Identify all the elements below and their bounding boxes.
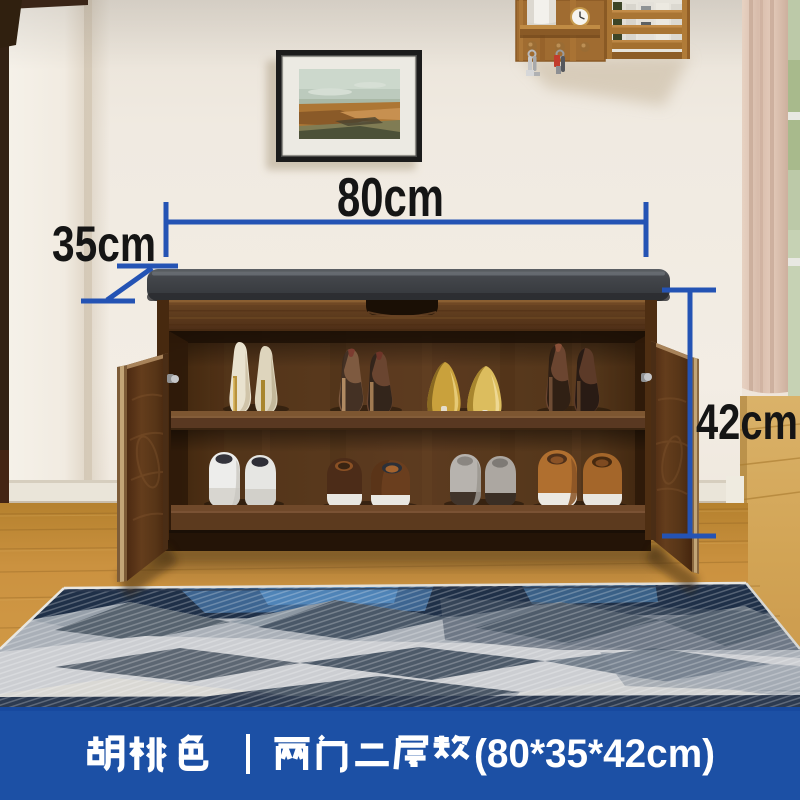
svg-text:(80*35*42cm): (80*35*42cm) [474, 732, 715, 776]
svg-text:80cm: 80cm [337, 166, 444, 228]
svg-text:42cm: 42cm [696, 394, 798, 450]
